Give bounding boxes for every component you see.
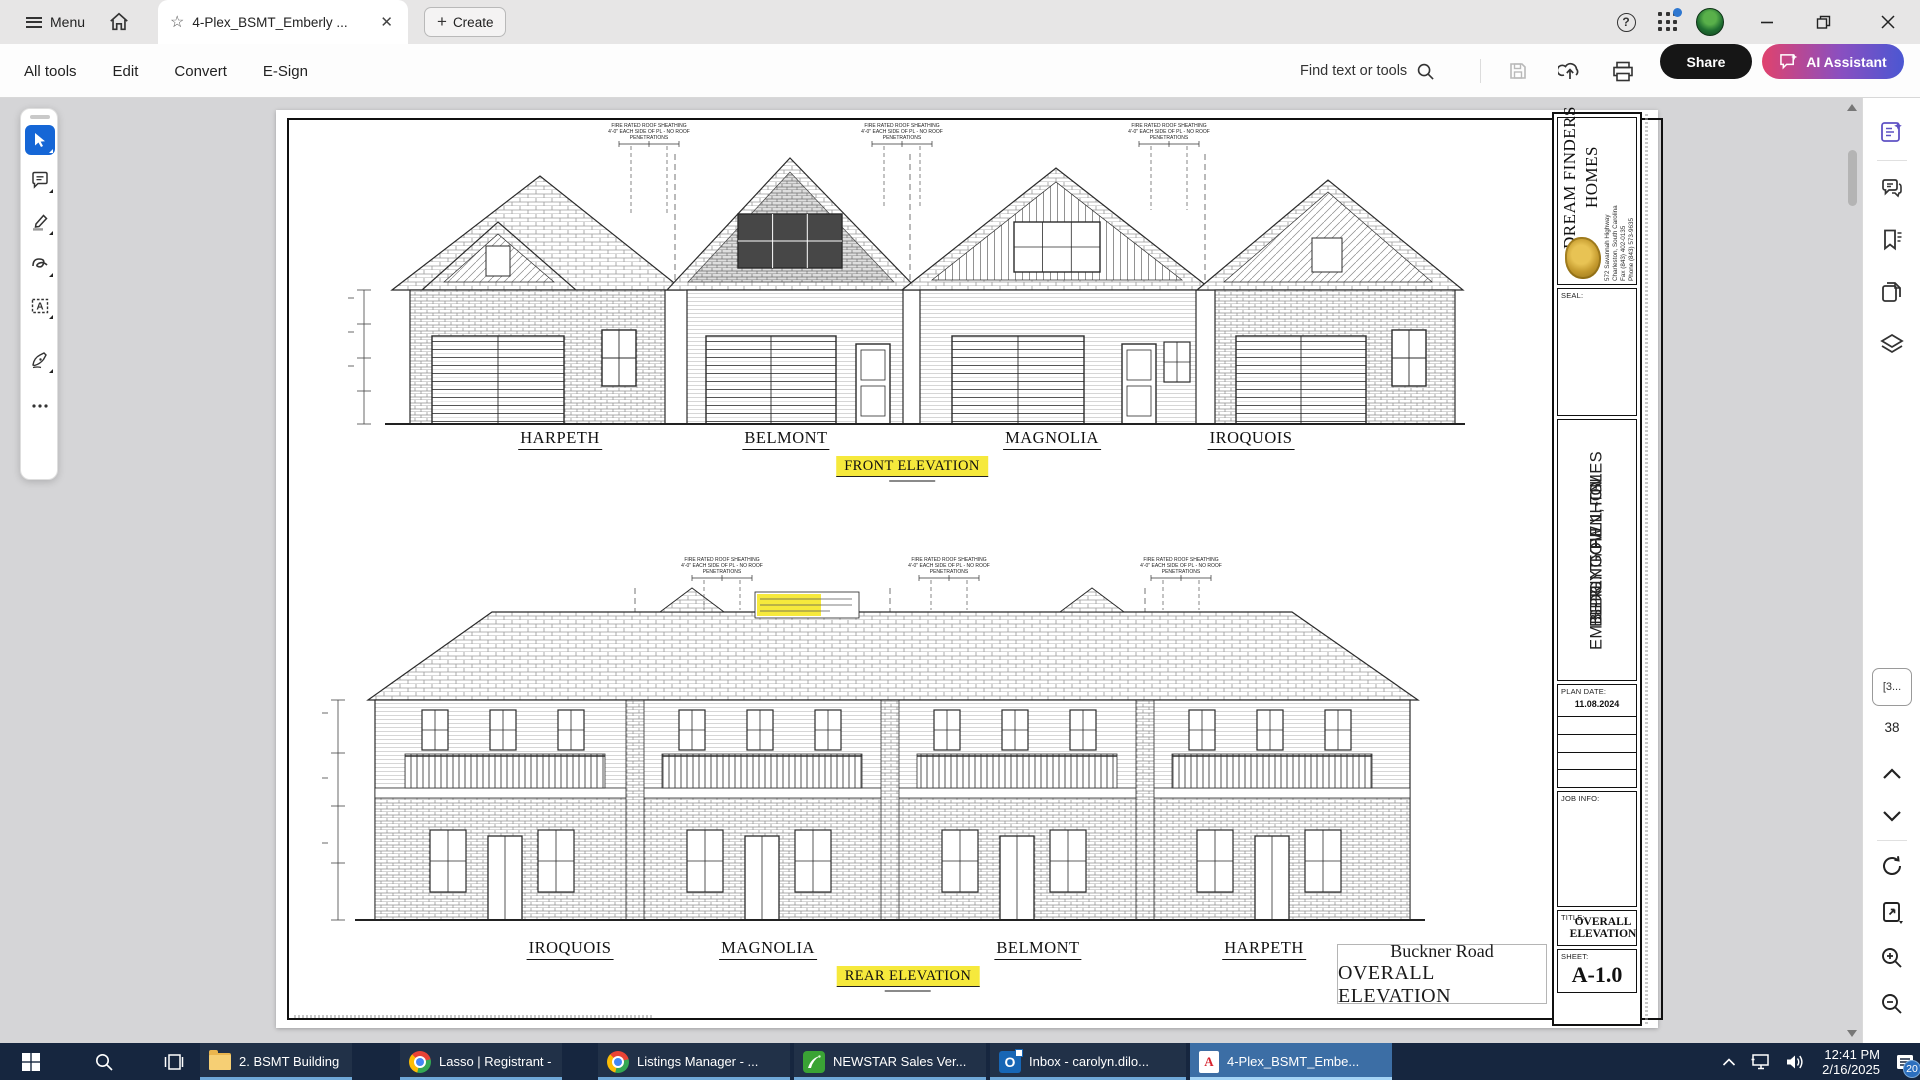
sheet-label: SHEET: — [1561, 952, 1588, 961]
fire-note-line3: PENETRATIONS — [703, 569, 742, 575]
toolbar-divider — [1480, 59, 1481, 83]
highlight-annotation[interactable]: REAR ELEVATION — [837, 966, 980, 987]
search-icon — [1416, 62, 1435, 81]
star-icon[interactable]: ☆ — [170, 12, 184, 32]
company-fax: Fax (843) 402-0135 — [1620, 121, 1627, 281]
page-number-value: [3... — [1883, 681, 1901, 693]
job-info-box: JOB INFO: — [1557, 791, 1637, 907]
chrome-icon — [409, 1051, 431, 1073]
ai-assistant-button[interactable]: AI Assistant — [1762, 44, 1904, 79]
upload-cloud-button[interactable] — [1550, 44, 1590, 98]
ai-assistant-panel-button[interactable] — [1876, 116, 1908, 148]
company-address: Charleston, South Carolina — [1612, 121, 1619, 281]
layers-panel-button[interactable] — [1876, 328, 1908, 360]
find-button[interactable]: Find text or tools — [1300, 44, 1435, 98]
taskbar-app-label: Lasso | Registrant - ... — [439, 1054, 553, 1069]
sheet-title-box: TITLE: OVERALL ELEVATION — [1557, 910, 1637, 946]
find-label: Find text or tools — [1300, 63, 1407, 79]
copyright-fine-print — [1645, 114, 1648, 1024]
folder-icon — [209, 1053, 231, 1070]
rear-unit-label: HARPETH — [1222, 938, 1306, 960]
taskbar-clock[interactable]: 12:41 PM 2/16/2025 — [1822, 1047, 1880, 1077]
tab-all-tools[interactable]: All tools — [24, 63, 77, 80]
minimize-button[interactable] — [1745, 0, 1789, 44]
print-button[interactable] — [1603, 44, 1643, 98]
taskbar-app-acrobat-active[interactable]: A 4-Plex_BSMT_Embe... — [1190, 1043, 1392, 1080]
dock-drag-handle[interactable] — [30, 115, 50, 119]
clock-date: 2/16/2025 — [1822, 1062, 1880, 1077]
taskbar-search-button[interactable] — [84, 1043, 124, 1080]
highlight-annotation[interactable]: FRONT ELEVATION — [836, 456, 988, 477]
address-box: Buckner Road OVERALL ELEVATION — [1337, 944, 1547, 1004]
comments-panel-button[interactable] — [1876, 172, 1908, 204]
create-tab-button[interactable]: + Create — [424, 7, 506, 37]
notification-dot — [1673, 8, 1682, 17]
right-panel-rail: [3... 38 — [1862, 98, 1920, 1043]
revision-row — [1558, 735, 1636, 753]
rail-divider — [1877, 840, 1907, 841]
minimize-icon — [1760, 15, 1774, 29]
company-name: HOMES — [1582, 146, 1602, 208]
share-button[interactable]: Share — [1660, 44, 1752, 79]
tray-show-hidden-icons[interactable] — [1714, 1043, 1744, 1080]
windows-start-icon — [21, 1052, 41, 1072]
newstar-icon — [803, 1051, 825, 1073]
next-page-button[interactable] — [1876, 800, 1908, 832]
tab-title: 4-Plex_BSMT_Emberly ... — [192, 15, 369, 30]
scale-note — [885, 990, 931, 992]
page-count: 38 — [1863, 720, 1920, 735]
fountain-pen-icon — [30, 350, 50, 370]
chevron-down-icon — [1882, 809, 1902, 823]
restore-button[interactable] — [1801, 0, 1845, 44]
close-icon — [1881, 15, 1895, 29]
tray-network-button[interactable] — [1744, 1043, 1778, 1080]
zoom-out-icon — [1879, 991, 1905, 1017]
street-name: Buckner Road — [1390, 941, 1493, 962]
zoom-in-button[interactable] — [1876, 942, 1908, 974]
fire-note-line3: PENETRATIONS — [1162, 569, 1201, 575]
draw-tool[interactable] — [25, 249, 55, 279]
draw-squiggle-icon — [30, 254, 50, 274]
zoom-in-icon — [1879, 945, 1905, 971]
export-page-icon — [1879, 899, 1905, 925]
create-label: Create — [453, 15, 494, 30]
taskbar-app-listings-manager[interactable]: Listings Manager - ... — [598, 1043, 790, 1080]
rear-elevation-drawing: FIRE RATED ROOF SHEATHING 4'-0" EACH SID… — [300, 548, 1480, 940]
sheet-title: OVERALL ELEVATION — [1572, 912, 1634, 944]
tab-convert[interactable]: Convert — [174, 63, 227, 80]
footer-fine-print — [294, 1015, 654, 1018]
clock-time: 12:41 PM — [1822, 1047, 1880, 1062]
home-icon — [108, 11, 130, 33]
refresh-button[interactable] — [1876, 850, 1908, 882]
scale-note — [889, 480, 935, 482]
fire-note-line3: PENETRATIONS — [1150, 135, 1189, 141]
chevron-up-icon — [1722, 1057, 1736, 1067]
plan-date-value: 11.08.2024 — [1558, 699, 1636, 709]
acrobat-pdf-icon: A — [1199, 1051, 1219, 1073]
job-info-label: JOB INFO: — [1561, 794, 1599, 803]
task-view-button[interactable] — [154, 1043, 194, 1080]
fire-note-line3: PENETRATIONS — [930, 569, 969, 575]
apps-grid-icon — [1658, 12, 1678, 32]
front-elevation-caption[interactable]: FRONT ELEVATION — [836, 456, 988, 482]
help-icon: ? — [1617, 13, 1636, 32]
front-unit-label: BELMONT — [742, 428, 829, 450]
apps-grid-button[interactable] — [1646, 0, 1690, 44]
export-page-button[interactable] — [1876, 896, 1908, 928]
scrollbar-thumb[interactable] — [1848, 150, 1857, 206]
vertical-scrollbar[interactable] — [1845, 98, 1860, 1043]
share-label: Share — [1687, 54, 1726, 70]
page-thumbnails-panel-button[interactable] — [1876, 276, 1908, 308]
ai-assistant-label: AI Assistant — [1806, 54, 1886, 70]
select-tool[interactable] — [25, 125, 55, 155]
account-button[interactable] — [1688, 0, 1732, 44]
help-button[interactable]: ? — [1604, 0, 1648, 44]
elevation-title: OVERALL ELEVATION — [1338, 962, 1546, 1008]
restore-icon — [1816, 15, 1831, 30]
volume-icon — [1785, 1053, 1805, 1071]
rear-unit-label: MAGNOLIA — [719, 938, 817, 960]
rear-unit-label: IROQUOIS — [527, 938, 614, 960]
ai-assistant-icon — [1779, 53, 1798, 70]
plan-date-label: PLAN DATE: — [1561, 687, 1606, 696]
windows-taskbar: 2. BSMT Building Lasso | Registrant - ..… — [0, 1043, 1920, 1080]
hamburger-icon — [26, 14, 42, 30]
refresh-icon — [1879, 853, 1905, 879]
save-button[interactable] — [1498, 44, 1538, 98]
rear-elevation-caption[interactable]: REAR ELEVATION — [837, 966, 980, 992]
toolbar: All tools Edit Convert E-Sign Find text … — [0, 44, 1920, 98]
company-logo-seal — [1565, 237, 1601, 279]
company-address: 572 Savannah Highway — [1604, 121, 1611, 281]
network-icon — [1750, 1053, 1772, 1071]
bookmark-icon — [1879, 227, 1905, 253]
plan-date-box: PLAN DATE: 11.08.2024 — [1557, 684, 1637, 788]
quick-tools-dock: A — [20, 108, 58, 480]
task-view-icon — [163, 1052, 185, 1072]
company-phone: Phone (843) 573-9635 — [1628, 121, 1635, 281]
tab-esign[interactable]: E-Sign — [263, 63, 308, 80]
revision-row — [1558, 717, 1636, 735]
taskbar-app-label: Listings Manager - ... — [637, 1054, 758, 1069]
taskbar-app-outlook-inbox[interactable]: O Inbox - carolyn.dilo... — [990, 1043, 1186, 1080]
menu-button[interactable]: Menu — [26, 0, 85, 44]
home-button[interactable] — [108, 0, 130, 44]
taskbar-app-label: NEWSTAR Sales Ver... — [833, 1054, 966, 1069]
taskbar-app-bsmt-building[interactable]: 2. BSMT Building — [200, 1043, 352, 1080]
project-box: EMBERLY TOWNHOMES BLDG. TYPE 1 - GL SPRI… — [1557, 419, 1637, 681]
comments-icon — [1879, 175, 1905, 201]
avatar — [1696, 8, 1724, 36]
scroll-up-arrow[interactable] — [1847, 104, 1857, 111]
seal-box: SEAL: — [1557, 288, 1637, 416]
layers-icon — [1878, 331, 1906, 357]
title-block: DREAM FINDERS HOMES 572 Savannah Highway… — [1552, 112, 1642, 1026]
save-icon — [1508, 61, 1528, 81]
rail-divider — [1877, 160, 1907, 161]
search-icon — [94, 1052, 114, 1072]
upload-cloud-icon — [1558, 60, 1582, 82]
previous-page-button[interactable] — [1876, 758, 1908, 790]
highlighter-icon — [30, 212, 50, 232]
plus-icon: + — [437, 12, 447, 32]
front-unit-label: HARPETH — [518, 428, 602, 450]
seal-label: SEAL: — [1561, 291, 1583, 300]
taskbar-app-label: Inbox - carolyn.dilo... — [1029, 1054, 1149, 1069]
taskbar-app-newstar[interactable]: NEWSTAR Sales Ver... — [794, 1043, 986, 1080]
svg-text:A: A — [36, 302, 43, 313]
taskbar-app-label: 4-Plex_BSMT_Embe... — [1227, 1054, 1359, 1069]
add-comment-tool[interactable] — [25, 165, 55, 195]
revision-row — [1558, 770, 1636, 787]
pdf-page: FIRE RATED ROOF SHEATHING 4'-0" EACH SID… — [276, 110, 1658, 1028]
taskbar-app-label: 2. BSMT Building — [239, 1054, 339, 1069]
page-number-field[interactable]: [3... — [1872, 668, 1912, 706]
sheet-number-box: SHEET: A-1.0 — [1557, 949, 1637, 993]
print-icon — [1612, 61, 1634, 82]
zoom-out-button[interactable] — [1876, 988, 1908, 1020]
chevron-up-icon — [1882, 767, 1902, 781]
menu-label: Menu — [50, 14, 85, 30]
ai-document-icon — [1879, 119, 1905, 145]
more-tools[interactable] — [25, 391, 55, 421]
ellipsis-icon — [30, 396, 50, 416]
text-select-icon: A — [30, 296, 50, 316]
titlebar: Menu ☆ 4-Plex_BSMT_Emberly ... ✕ + Creat… — [0, 0, 1920, 44]
tab-edit[interactable]: Edit — [113, 63, 139, 80]
tab-close-icon[interactable]: ✕ — [377, 13, 396, 31]
fire-note-line3: PENETRATIONS — [630, 135, 669, 141]
close-window-button[interactable] — [1866, 0, 1910, 44]
highlighted-note-box[interactable] — [755, 592, 859, 618]
highlight-tool[interactable] — [25, 207, 55, 237]
company-name: DREAM FINDERS — [1560, 106, 1580, 249]
comment-icon — [30, 170, 50, 190]
sheet-number: A-1.0 — [1558, 962, 1636, 988]
taskbar-app-lasso[interactable]: Lasso | Registrant - ... — [400, 1043, 562, 1080]
tray-volume-button[interactable] — [1778, 1043, 1812, 1080]
bookmarks-panel-button[interactable] — [1876, 224, 1908, 256]
pages-copy-icon — [1879, 279, 1905, 305]
select-text-box-tool[interactable]: A — [25, 291, 55, 321]
front-elevation-drawing: FIRE RATED ROOF SHEATHING 4'-0" EACH SID… — [340, 118, 1510, 455]
revision-row — [1558, 753, 1636, 771]
chrome-icon — [607, 1051, 629, 1073]
rear-unit-label: BELMONT — [994, 938, 1081, 960]
project-location: SPRING HILL, TN — [1558, 420, 1636, 680]
scroll-down-arrow[interactable] — [1847, 1030, 1857, 1037]
start-button[interactable] — [12, 1043, 50, 1080]
company-box: DREAM FINDERS HOMES 572 Savannah Highway… — [1557, 117, 1637, 285]
front-unit-label: MAGNOLIA — [1003, 428, 1101, 450]
outlook-icon: O — [999, 1051, 1021, 1073]
document-tab[interactable]: ☆ 4-Plex_BSMT_Emberly ... ✕ — [158, 0, 408, 44]
notification-count-badge: 20 — [1903, 1060, 1920, 1078]
front-unit-label: IROQUOIS — [1208, 428, 1295, 450]
fill-sign-tool[interactable] — [25, 345, 55, 375]
cursor-icon — [31, 131, 49, 149]
action-center-button[interactable]: 20 — [1890, 1043, 1920, 1080]
fire-note-line3: PENETRATIONS — [883, 135, 922, 141]
